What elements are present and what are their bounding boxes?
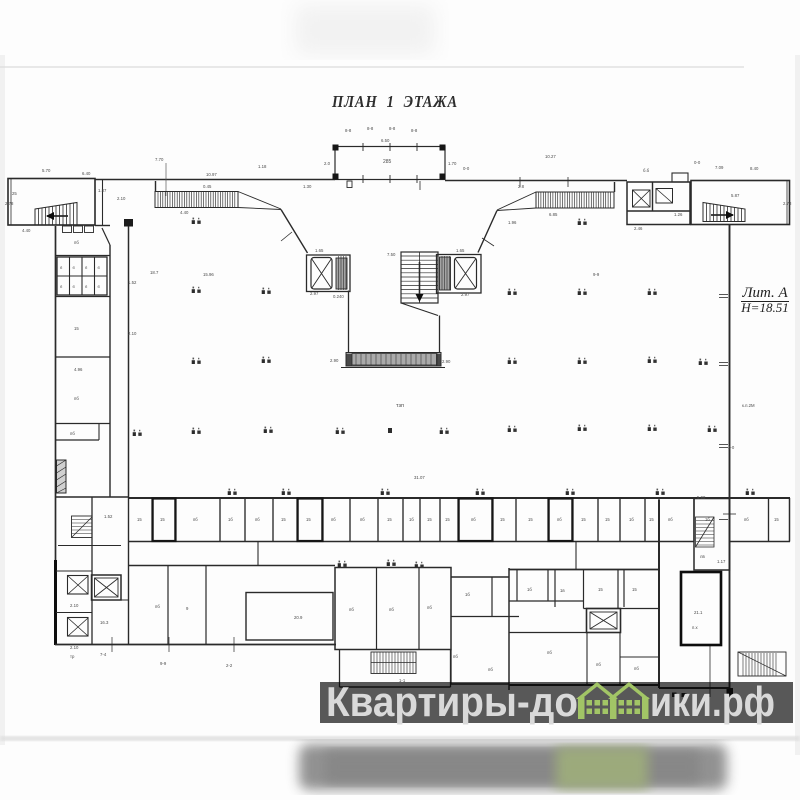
svg-text:5.70: 5.70	[42, 168, 51, 173]
svg-text:15: 15	[387, 517, 392, 522]
svg-text:пб: пб	[331, 517, 336, 522]
svg-text:пб: пб	[427, 605, 432, 610]
svg-text:7.09: 7.09	[715, 165, 724, 170]
svg-text:тр: тр	[70, 654, 75, 659]
svg-text:8-8: 8-8	[411, 128, 418, 133]
svg-text:2.97: 2.97	[461, 292, 470, 297]
svg-text:пб: пб	[557, 517, 562, 522]
svg-text:15.96: 15.96	[203, 272, 214, 277]
svg-text:1.30: 1.30	[303, 184, 312, 189]
svg-text:пб: пб	[453, 654, 458, 659]
svg-text:2.97: 2.97	[310, 291, 319, 296]
svg-text:1.70: 1.70	[448, 161, 457, 166]
svg-text:Н=18.51: Н=18.51	[740, 300, 788, 315]
svg-text:4.40: 4.40	[180, 210, 189, 215]
svg-text:15: 15	[74, 326, 79, 331]
svg-text:20.9: 20.9	[294, 615, 303, 620]
svg-text:пб: пб	[744, 517, 749, 522]
svg-text:9-9: 9-9	[593, 272, 600, 277]
svg-text:2.8: 2.8	[518, 184, 525, 189]
svg-text:8-8: 8-8	[367, 126, 374, 131]
svg-text:1.52: 1.52	[128, 280, 137, 285]
svg-text:1.96: 1.96	[508, 220, 517, 225]
svg-text:пб: пб	[74, 396, 79, 401]
svg-text:15: 15	[306, 517, 311, 522]
svg-text:2.90: 2.90	[330, 358, 339, 363]
svg-text:2.78: 2.78	[5, 201, 14, 206]
svg-text:1.65: 1.65	[456, 248, 465, 253]
svg-text:7-4: 7-4	[100, 652, 107, 657]
svg-text:лв: лв	[700, 554, 706, 559]
svg-text:6.85: 6.85	[549, 212, 558, 217]
svg-text:21.1: 21.1	[694, 610, 703, 615]
svg-text:0-0: 0-0	[694, 160, 701, 165]
svg-text:15: 15	[500, 517, 505, 522]
svg-text:1б: 1б	[465, 592, 470, 597]
svg-text:пб: пб	[634, 666, 639, 671]
svg-text:2.0: 2.0	[324, 161, 331, 166]
svg-text:ики.рф: ики.рф	[650, 678, 775, 725]
svg-text:10.27: 10.27	[545, 154, 556, 159]
svg-text:п.х: п.х	[692, 625, 699, 630]
svg-text:15: 15	[774, 517, 779, 522]
svg-text:10.97: 10.97	[206, 172, 217, 177]
svg-text:Лит. А: Лит. А	[741, 285, 788, 301]
svg-text:пб: пб	[349, 607, 354, 612]
svg-text:15: 15	[598, 587, 603, 592]
svg-text:1б: 1б	[409, 517, 414, 522]
svg-text:5.98: 5.98	[697, 495, 706, 500]
svg-text:31.07: 31.07	[414, 475, 425, 480]
svg-text:15: 15	[528, 517, 533, 522]
svg-text:пб: пб	[360, 517, 365, 522]
svg-text:пб: пб	[70, 431, 75, 436]
svg-text:15: 15	[581, 517, 586, 522]
svg-text:2.90: 2.90	[442, 359, 451, 364]
svg-text:пб: пб	[74, 240, 79, 245]
svg-text:15: 15	[445, 517, 450, 522]
svg-text:пб: пб	[596, 662, 601, 667]
svg-text:7.50: 7.50	[387, 252, 396, 257]
svg-text:2.78: 2.78	[783, 201, 792, 206]
svg-text:15: 15	[137, 517, 142, 522]
svg-text:4.96: 4.96	[74, 367, 83, 372]
svg-text:1б: 1б	[705, 517, 710, 522]
svg-text:к.п.2М: к.п.2М	[742, 403, 755, 408]
svg-text:0.240: 0.240	[333, 294, 344, 299]
svg-text:15: 15	[632, 587, 637, 592]
svg-text:пб: пб	[255, 517, 260, 522]
svg-text:2.10: 2.10	[70, 603, 79, 608]
svg-text:9-9: 9-9	[160, 661, 167, 666]
svg-text:16.3: 16.3	[100, 620, 109, 625]
svg-text:1б: 1б	[629, 517, 634, 522]
svg-text:пб: пб	[668, 517, 673, 522]
svg-text:18.7: 18.7	[150, 270, 159, 275]
svg-text:15: 15	[605, 517, 610, 522]
svg-text:1.52: 1.52	[104, 514, 113, 519]
svg-text:1б: 1б	[228, 517, 233, 522]
svg-text:пб: пб	[155, 604, 160, 609]
svg-text:0-0: 0-0	[463, 166, 470, 171]
svg-text:Квартиры-до: Квартиры-до	[326, 678, 578, 725]
svg-text:4-0: 4-0	[728, 445, 735, 450]
svg-text:пб: пб	[193, 517, 198, 522]
svg-text:тзп: тзп	[396, 403, 404, 409]
svg-text:пб: пб	[488, 667, 493, 672]
svg-text:15: 15	[281, 517, 286, 522]
svg-text:2.10: 2.10	[117, 196, 126, 201]
svg-text:285: 285	[383, 159, 392, 165]
svg-text:8.40: 8.40	[750, 166, 759, 171]
svg-text:4.40: 4.40	[22, 228, 31, 233]
svg-text:1в: 1в	[560, 588, 565, 593]
svg-text:1.26: 1.26	[674, 212, 683, 217]
svg-text:пб: пб	[471, 517, 476, 522]
svg-text:1.18: 1.18	[258, 164, 267, 169]
svg-text:2.46: 2.46	[634, 226, 643, 231]
svg-text:2-2: 2-2	[226, 663, 233, 668]
svg-text:0.45: 0.45	[203, 184, 212, 189]
svg-text:15: 15	[649, 517, 654, 522]
svg-text:пб: пб	[547, 650, 552, 655]
svg-text:1б: 1б	[527, 587, 532, 592]
svg-text:ПЛАН 1 ЭТАЖА: ПЛАН 1 ЭТАЖА	[331, 92, 458, 111]
svg-text:пб: пб	[389, 607, 394, 612]
svg-text:6.50: 6.50	[381, 138, 390, 143]
svg-text:15: 15	[427, 517, 432, 522]
svg-text:25: 25	[12, 191, 17, 196]
svg-text:8-8: 8-8	[345, 128, 352, 133]
svg-text:6.40: 6.40	[82, 171, 91, 176]
svg-text:1.17: 1.17	[717, 559, 726, 564]
svg-text:15: 15	[160, 517, 165, 522]
svg-text:5.87: 5.87	[731, 193, 740, 198]
svg-text:1.87: 1.87	[98, 188, 107, 193]
svg-text:8-8: 8-8	[389, 126, 396, 131]
svg-text:1.65: 1.65	[315, 248, 324, 253]
svg-text:2.10: 2.10	[70, 645, 79, 650]
svg-text:7.70: 7.70	[155, 157, 164, 162]
svg-text:б.б: б.б	[643, 168, 650, 173]
svg-text:2.10: 2.10	[128, 331, 137, 336]
